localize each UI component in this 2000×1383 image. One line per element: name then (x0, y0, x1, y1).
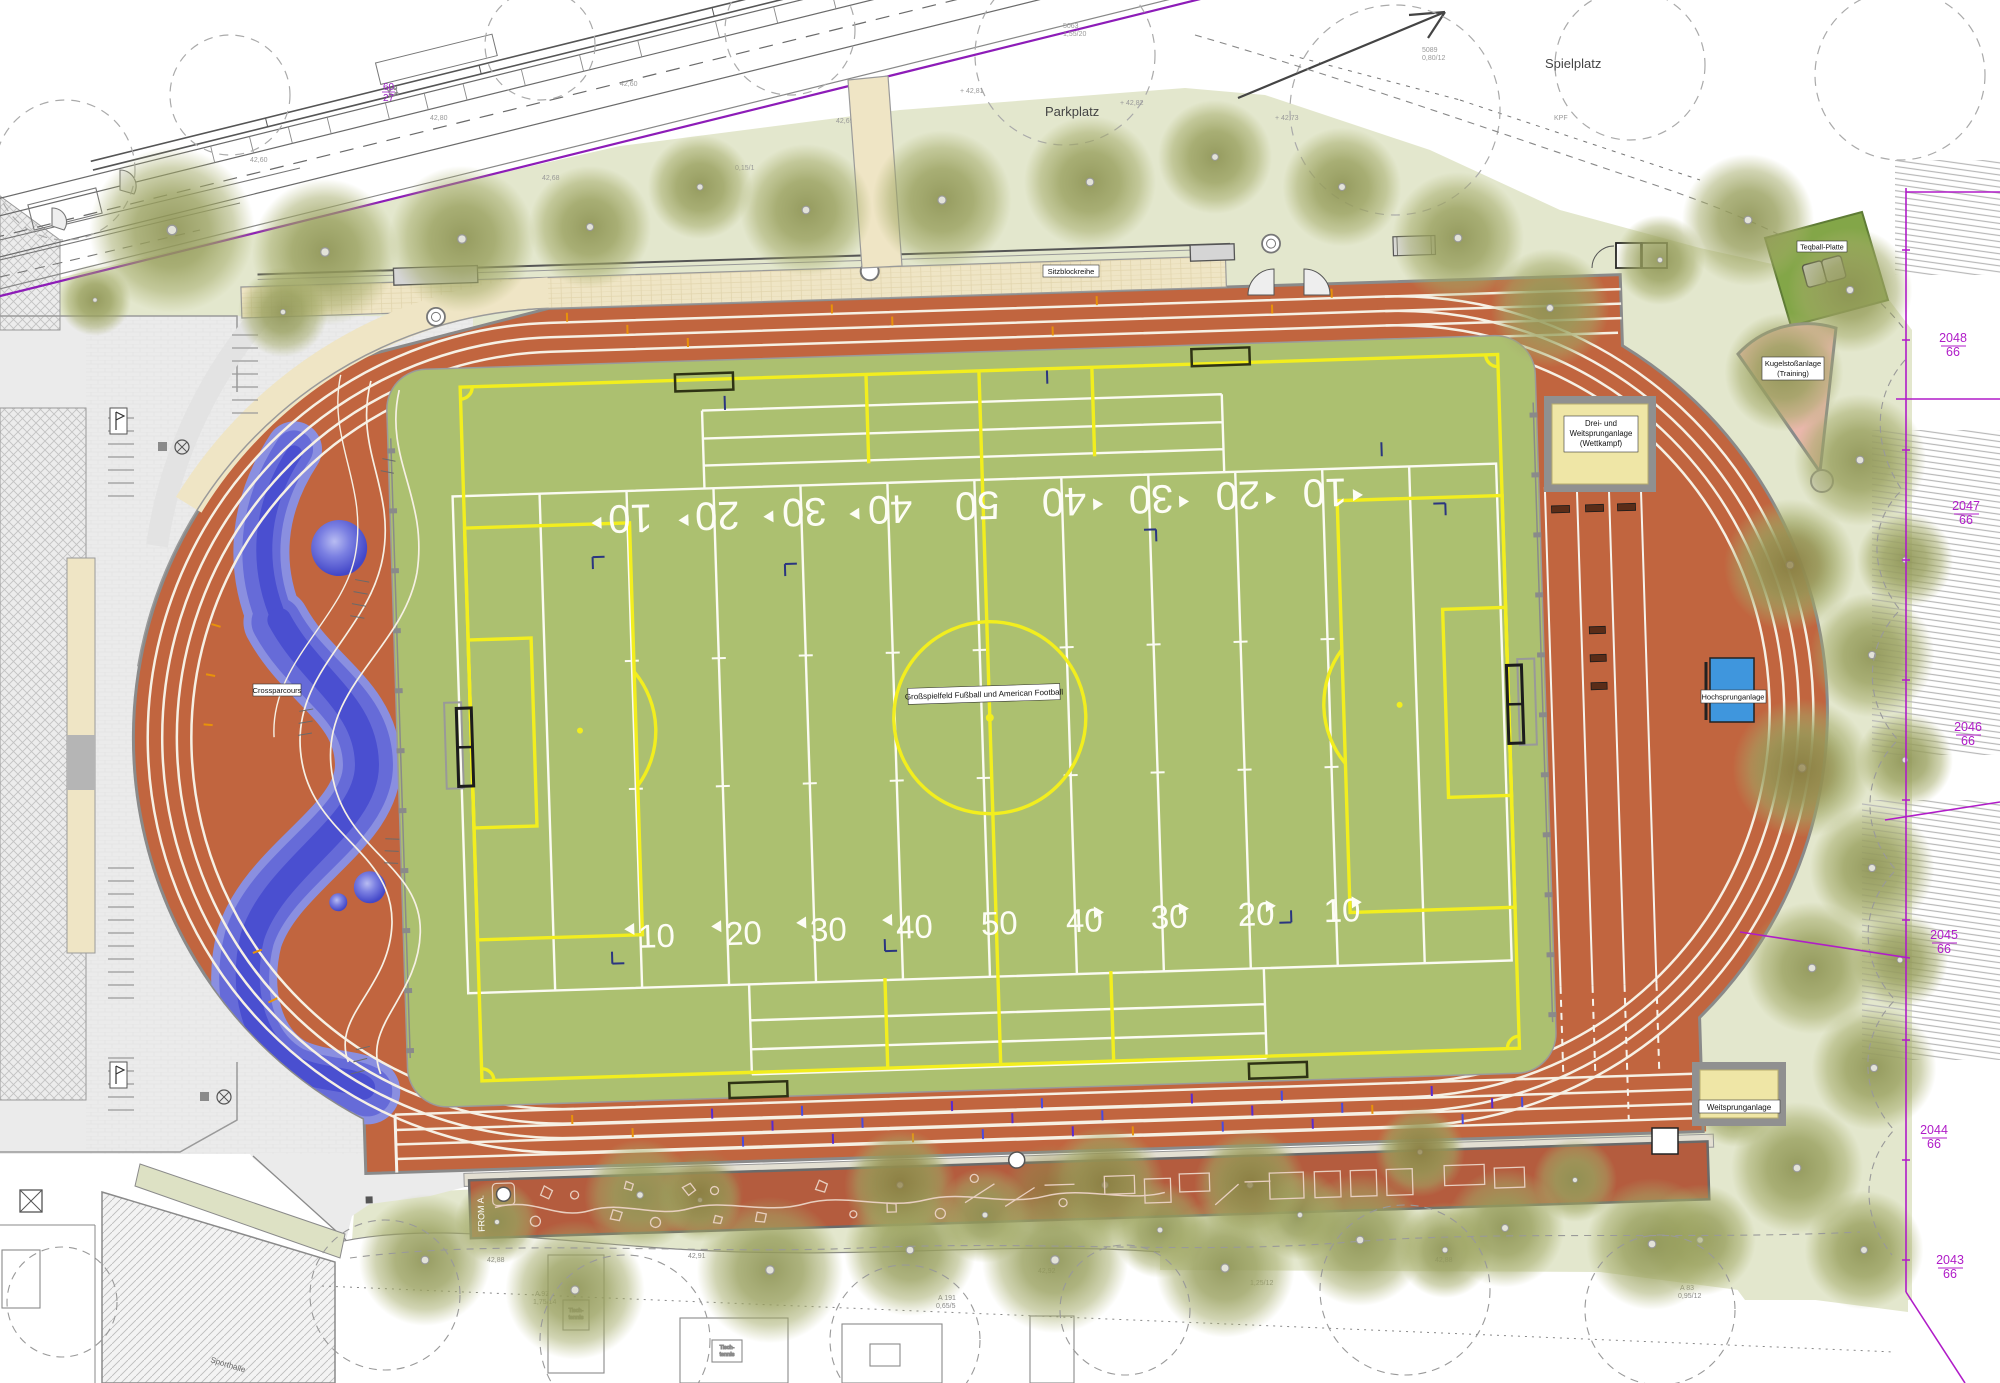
svg-text:Spielplatz: Spielplatz (1545, 56, 1601, 71)
svg-text:10: 10 (638, 917, 676, 955)
svg-text:1,55/20: 1,55/20 (1063, 31, 1086, 38)
svg-text:(Training): (Training) (1777, 369, 1809, 378)
svg-text:0,80/12: 0,80/12 (1422, 55, 1445, 62)
svg-text:40: 40 (1041, 479, 1087, 524)
svg-text:42,60: 42,60 (250, 157, 268, 164)
svg-text:FROM A.: FROM A. (476, 1195, 487, 1232)
svg-text:30: 30 (781, 489, 827, 534)
svg-text:2047: 2047 (1952, 499, 1980, 513)
svg-text:10: 10 (607, 495, 653, 540)
svg-text:20: 20 (1237, 895, 1275, 933)
svg-text:20: 20 (1215, 472, 1261, 517)
svg-text:10: 10 (1323, 891, 1361, 929)
svg-text:10: 10 (1302, 469, 1348, 514)
svg-text:20: 20 (694, 492, 740, 537)
svg-text:66: 66 (1937, 942, 1951, 956)
svg-text:42,60: 42,60 (620, 81, 638, 88)
svg-text:66: 66 (1961, 734, 1975, 748)
svg-text:Hochsprunganlage: Hochsprunganlage (1702, 693, 1765, 702)
svg-text:66: 66 (1959, 513, 1973, 527)
svg-text:+ 42,82: + 42,82 (1120, 100, 1144, 107)
svg-text:2046: 2046 (1954, 720, 1982, 734)
svg-text:KPF: KPF (1554, 115, 1568, 122)
svg-text:27: 27 (383, 93, 395, 104)
svg-text:20: 20 (725, 914, 763, 952)
svg-text:42,80: 42,80 (430, 115, 448, 122)
svg-text:Crossparcours: Crossparcours (253, 686, 302, 695)
svg-text:(Wettkampf): (Wettkampf) (1580, 439, 1623, 448)
svg-text:Weitsprunganlage: Weitsprunganlage (1570, 429, 1633, 438)
svg-text:Drei- und: Drei- und (1585, 419, 1617, 428)
svg-text:2043: 2043 (1936, 1253, 1964, 1267)
svg-text:66: 66 (1927, 1137, 1941, 1151)
svg-text:30: 30 (1128, 476, 1174, 521)
svg-text:30: 30 (1150, 898, 1188, 936)
svg-text:Sitzblockreihe: Sitzblockreihe (1048, 267, 1095, 276)
svg-text:66: 66 (1943, 1267, 1957, 1281)
svg-text:60: 60 (383, 82, 395, 93)
svg-text:50: 50 (954, 482, 1000, 527)
svg-text:5089: 5089 (1422, 47, 1438, 54)
svg-text:2044: 2044 (1920, 1123, 1948, 1137)
svg-text:40: 40 (895, 908, 933, 946)
svg-text:Teqball-Platte: Teqball-Platte (1800, 243, 1844, 252)
svg-text:Tisch-: Tisch- (720, 1345, 735, 1351)
svg-text:40: 40 (1065, 901, 1103, 939)
svg-text:Kugelstoßanlage: Kugelstoßanlage (1765, 359, 1821, 368)
svg-text:30: 30 (809, 910, 847, 948)
svg-text:40: 40 (867, 486, 913, 531)
svg-text:5063: 5063 (1063, 23, 1079, 30)
svg-text:50: 50 (980, 904, 1018, 942)
svg-text:Weitsprunganlage: Weitsprunganlage (1707, 1103, 1772, 1112)
svg-text:+ 42,73: + 42,73 (1275, 115, 1299, 122)
svg-text:2045: 2045 (1930, 928, 1958, 942)
svg-text:tennis: tennis (720, 1352, 735, 1358)
svg-text:+ 42,81: + 42,81 (960, 88, 984, 95)
svg-text:66: 66 (1946, 345, 1960, 359)
svg-text:2048: 2048 (1939, 331, 1967, 345)
